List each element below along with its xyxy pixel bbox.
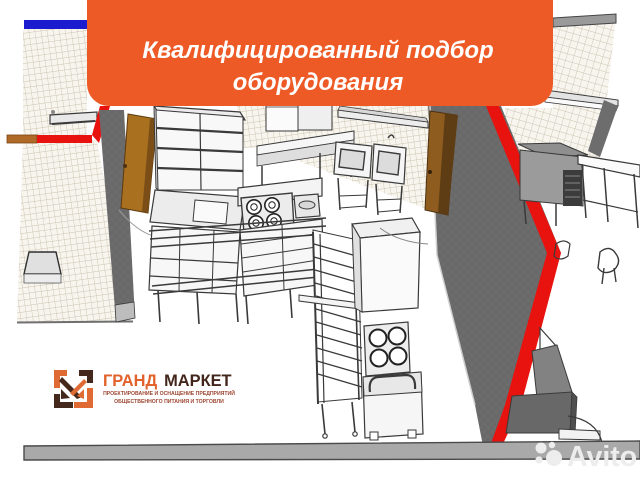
svg-text:ПРОЕКТИРОВАНИЕ И ОСНАЩЕНИЕ ПРЕ: ПРОЕКТИРОВАНИЕ И ОСНАЩЕНИЕ ПРЕДПРИЯТИЙ	[103, 389, 235, 397]
svg-text:оборудования: оборудования	[233, 69, 403, 96]
svg-text:Avito: Avito	[567, 441, 637, 473]
svg-text:Квалифицированный подбор: Квалифицированный подбор	[142, 37, 493, 64]
svg-text:ГРАНДМАРКЕТ: ГРАНДМАРКЕТ	[103, 372, 232, 390]
svg-text:ОБЩЕСТВЕННОГО ПИТАНИЯ И ТОРГОВ: ОБЩЕСТВЕННОГО ПИТАНИЯ И ТОРГОВЛИ	[114, 399, 224, 405]
